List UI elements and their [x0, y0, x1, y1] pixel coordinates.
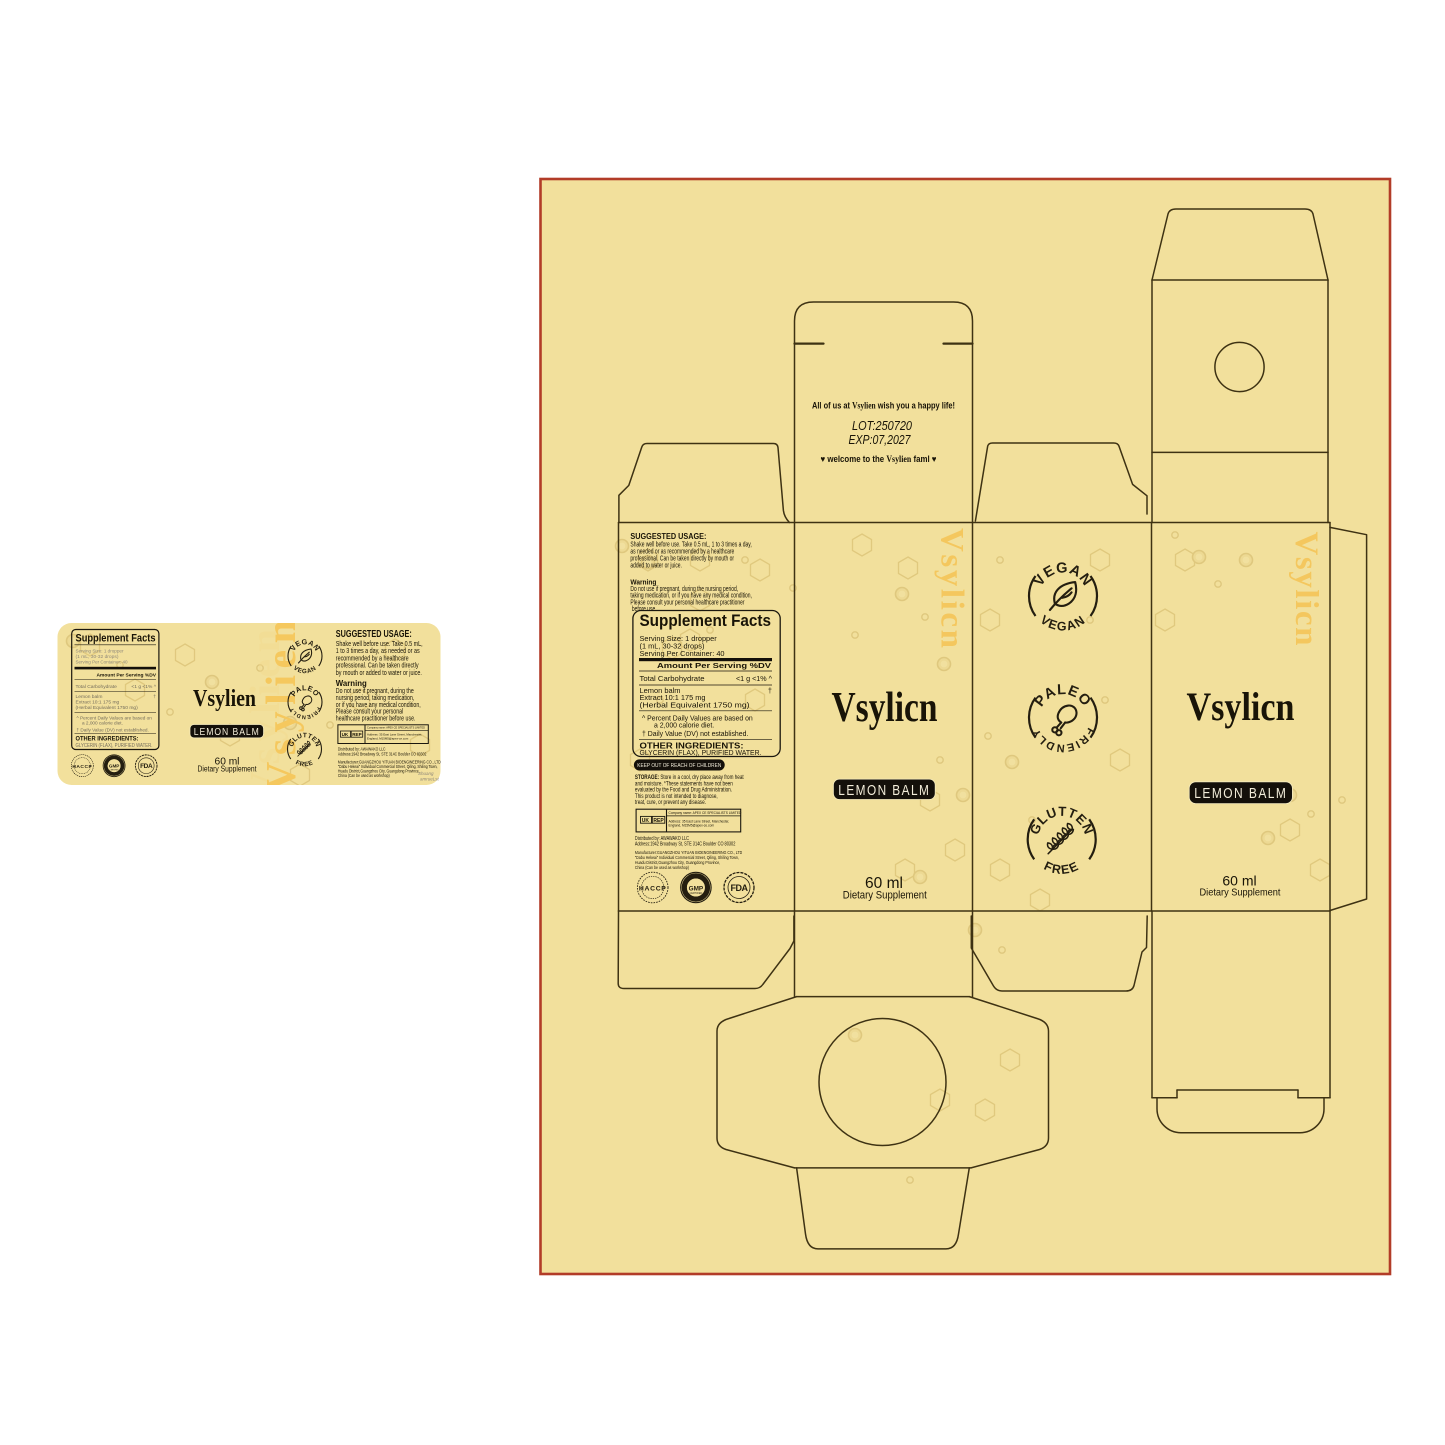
svg-text:Amount Per Serving %DV: Amount Per Serving %DV [657, 663, 772, 670]
svg-text:Address:1942 Broadway St, STE: Address:1942 Broadway St, STE 314C Bould… [635, 841, 736, 847]
svg-text:<1 g <1% ^: <1 g <1% ^ [736, 676, 773, 683]
svg-text:a 2,000 calorie diet.: a 2,000 calorie diet. [654, 723, 714, 730]
svg-text:Company name: APEX CE SPECIALI: Company name: APEX CE SPECIALISTS LIMITE… [669, 811, 743, 815]
svg-text:China (Can be used as workshop: China (Can be used as workshop) [338, 773, 390, 779]
svg-text:Vsylicn: Vsylicn [1288, 532, 1324, 646]
svg-text:LOT:250720: LOT:250720 [852, 418, 913, 433]
svg-text:Extract 10:1 175 mg: Extract 10:1 175 mg [76, 700, 120, 706]
svg-text:SUGGESTED USAGE:: SUGGESTED USAGE: [630, 532, 706, 541]
svg-text:Serving Per Container: 40: Serving Per Container: 40 [640, 649, 725, 658]
svg-text:Address:1942 Broadway St, STE: Address:1942 Broadway St, STE 314C Bould… [338, 751, 426, 757]
svg-text:Vsylicn: Vsylicn [1187, 684, 1295, 729]
svg-text:All of us at Vsylien wish you: All of us at Vsylien wish you a happy li… [812, 401, 955, 411]
svg-text:Warning: Warning [630, 578, 656, 587]
svg-text:Dietary Supplement: Dietary Supplement [843, 890, 928, 902]
svg-text:Supplement Facts: Supplement Facts [76, 633, 156, 645]
svg-text:Shuang: Shuang [418, 771, 434, 776]
svg-text:^ Percent Daily Values are b: ^ Percent Daily Values are based on [642, 715, 753, 722]
svg-text:† Daily Value (DV) not establ: † Daily Value (DV) not established. [77, 728, 149, 733]
svg-text:LEMON BALM: LEMON BALM [838, 783, 930, 799]
svg-text:amrueLst: amrueLst [420, 777, 440, 782]
svg-text:added to water or juice.: added to water or juice. [630, 563, 682, 570]
svg-text:EXP:07,2027: EXP:07,2027 [849, 432, 912, 447]
svg-text:Lemon balm: Lemon balm [76, 694, 103, 700]
svg-text:UK: UK [342, 732, 349, 737]
svg-text:REP: REP [352, 732, 361, 737]
svg-text:Serving Size: 1 dropper: Serving Size: 1 dropper [76, 649, 124, 655]
svg-text:Shake well before use. Take 0.: Shake well before use. Take 0.5 mL, 1 to… [630, 542, 752, 549]
svg-text:(Herbal Equivalent 1750 mg): (Herbal Equivalent 1750 mg) [640, 700, 750, 709]
svg-text:Vsylien: Vsylien [193, 686, 256, 712]
svg-text:UK: UK [642, 818, 650, 824]
svg-text:<1 g <1% ^: <1 g <1% ^ [131, 684, 156, 690]
svg-text:† Daily Value (DV) not estab: † Daily Value (DV) not established. [642, 731, 748, 738]
svg-text:Total Carbohydrate: Total Carbohydrate [640, 674, 705, 683]
svg-text:Dietary Supplement: Dietary Supplement [1200, 888, 1281, 899]
svg-text:Amount Per Serving %DV: Amount Per Serving %DV [96, 673, 156, 679]
svg-text:KEEP OUT OF REACH OF CHILDREN: KEEP OUT OF REACH OF CHILDREN [637, 763, 721, 769]
svg-text:(Herbal Equivalent 1750 mg): (Herbal Equivalent 1750 mg) [76, 705, 139, 711]
svg-text:Vsylicn: Vsylicn [832, 685, 938, 731]
svg-text:professional. Can be taken dir: professional. Can be taken directly by m… [630, 556, 734, 563]
svg-text:†: † [153, 694, 156, 700]
svg-text:Serving Per Container: 40: Serving Per Container: 40 [76, 660, 128, 666]
svg-text:Vsylicn: Vsylicn [934, 528, 970, 648]
svg-text:♥ welcome to the Vsylien faml: ♥ welcome to the Vsylien faml ♥ [821, 454, 937, 464]
svg-text:England, M15M5@apex-ce.com: England, M15M5@apex-ce.com [367, 736, 409, 740]
svg-text:Dietary Supplement: Dietary Supplement [198, 765, 258, 774]
svg-text:Total Carbohydrate: Total Carbohydrate [76, 684, 118, 690]
svg-text:LEMON BALM: LEMON BALM [194, 727, 260, 738]
svg-text:(1 mL, 30-32 drops): (1 mL, 30-32 drops) [76, 654, 119, 660]
svg-text:LEMON BALM: LEMON BALM [1194, 785, 1287, 802]
svg-text:a 2,000 calorie diet.: a 2,000 calorie diet. [82, 721, 123, 726]
svg-text:SUGGESTED USAGE:: SUGGESTED USAGE: [336, 629, 412, 640]
svg-text:by mouth or added to water or: by mouth or added to water or juice. [336, 669, 422, 677]
svg-text:60 ml: 60 ml [1222, 873, 1256, 889]
svg-text:OTHER INGREDIENTS:: OTHER INGREDIENTS: [76, 736, 139, 743]
svg-text:China (Can be used as workshop: China (Can be used as workshop) [635, 865, 690, 871]
svg-text:Supplement Facts: Supplement Facts [640, 612, 772, 630]
svg-text:GLYCERIN (FLAX), PURIFIED WATE: GLYCERIN (FLAX), PURIFIED WATER. [640, 750, 762, 757]
svg-text:as needed or as recommended by: as needed or as recommended by a healthc… [630, 549, 734, 556]
svg-text:†: † [768, 686, 772, 695]
svg-text:Company name: APEX CE SPECIALI: Company name: APEX CE SPECIALISTS LIMITE… [367, 726, 425, 730]
svg-text:REP: REP [653, 818, 664, 824]
svg-text:treat, cure, or prevent any di: treat, cure, or prevent any disease. [635, 800, 706, 807]
svg-text:healthcare practitioner before: healthcare practitioner before use. [336, 715, 416, 723]
svg-text:GLYCERIN (FLAX), PURIFIED WATE: GLYCERIN (FLAX), PURIFIED WATER. [76, 743, 153, 749]
svg-text:England, M15M5@apex-ce.com: England, M15M5@apex-ce.com [669, 824, 715, 828]
